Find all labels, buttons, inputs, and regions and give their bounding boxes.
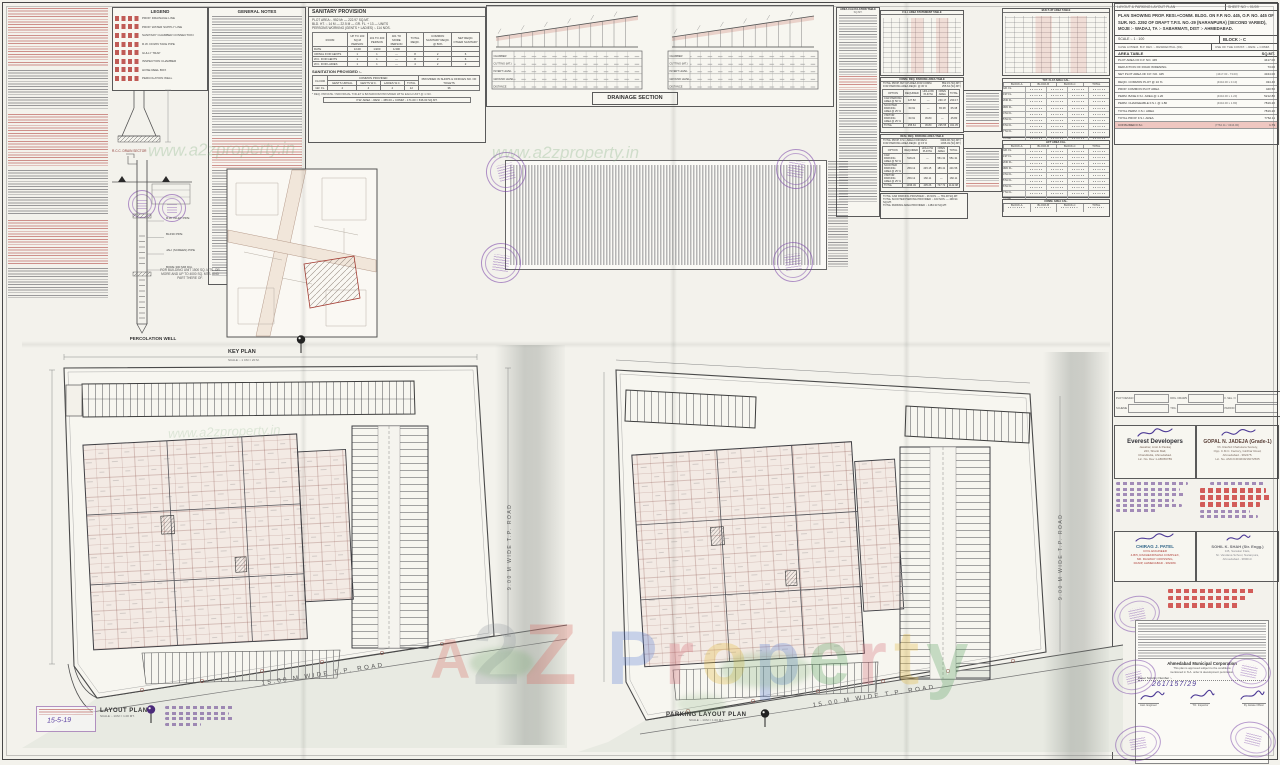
cell (1067, 167, 1088, 172)
cell: 295.55 (936, 124, 948, 128)
row: CAR PARKING AREA @ 50 %127.82—230.17230.… (883, 97, 960, 104)
area-table-row: CONSUMED F.S.I. (7762.11 / 4344.00) 1.79 (1115, 122, 1278, 129)
cell (1088, 130, 1109, 135)
col-header: BLOCK-A (1003, 83, 1030, 86)
area-row-calc: (7762.11 / 4344.00) (1205, 123, 1249, 127)
area-row-value: 1.79 (1249, 123, 1278, 127)
sign-label: T.D. Inspector (1190, 703, 1210, 707)
floor-label: 2ND FL. (1003, 99, 1025, 104)
legend-item: PERCOLATION WELL (113, 74, 207, 83)
floor-label: 1ST FL. (1003, 93, 1025, 98)
cell: 4 (406, 62, 424, 67)
cell: SCOOTER PARKING AREA @ 25 % (883, 104, 904, 114)
cell (1046, 155, 1067, 160)
legend-item-label: PERCOLATION WELL (142, 76, 172, 80)
body: CAR PARKING AREA @ 50 %518.24—551.31551.… (883, 154, 960, 188)
area-row-value: 5212.80 (1249, 94, 1278, 98)
bullet-line: FOR PARKING AREA REQD. @ 30 %255.64 (SQ.… (881, 85, 963, 88)
legend-item: INSPECTION CHAMBER (113, 57, 207, 66)
fold-crease (670, 3, 677, 759)
drainage-diagram-1: CHAMBER CUTTING (MT.) INVERT LEVEL GROUN… (492, 12, 642, 89)
cell: FLOOR (313, 76, 328, 86)
cell (1088, 167, 1109, 172)
info-value-box (1134, 394, 1169, 403)
cell (1088, 173, 1109, 178)
row: VISITOR PARKING AREA @ 25 %63.9145.80—45… (883, 114, 960, 124)
row: SCOOTER PARKING AREA @ 25 %259.12245.151… (883, 164, 960, 174)
col-header: BLOCK-B (1030, 145, 1057, 148)
area-table-row: PERM. CHARGEABLE F.S.I. @ 1.80 (4344.00 … (1115, 100, 1278, 107)
sanitary-header-cell: TOTAL REQD. (406, 33, 424, 47)
cell (1088, 191, 1109, 196)
floor-label: 7TH FL. (1003, 130, 1025, 135)
info-label: F. SEL. N (1225, 397, 1236, 400)
legend-item-label: HOSE REEL BOX (142, 68, 166, 72)
info-value-box (1237, 394, 1278, 403)
col-header: TOTAL (1083, 83, 1110, 86)
floor-label: 5TH FL. (1003, 118, 1025, 123)
cell: OPTION (883, 147, 903, 154)
svg-text:CHAMBER: CHAMBER (494, 54, 507, 58)
cell (1088, 185, 1109, 190)
col-header: TOTAL (1083, 145, 1110, 148)
amc-signatures (1138, 689, 1266, 703)
cell: 160.11 (920, 174, 936, 184)
legend-symbol-icon (115, 42, 139, 47)
col-header: BLOCK-C (1056, 83, 1083, 86)
area-row-value: 4344.00 (1249, 72, 1278, 76)
legend-symbol-icon (115, 50, 139, 55)
legend-item-label: R.W. DOWN TAKE PIPE (142, 42, 175, 46)
cell (1088, 149, 1109, 154)
general-notes-title: GENERAL NOTES (209, 8, 305, 15)
provided-value-row: GR. FL.4441236 (313, 86, 480, 91)
address-line: Ahmedabad - 380013. (1197, 557, 1278, 561)
info-label: PLOT DESIGN (1116, 397, 1133, 400)
plan-type-label: LAYOUT & PARKING LAYOUT PLAN (1115, 4, 1226, 10)
area-row-label: REQD. COMMON PLOT @ 10 % (1115, 80, 1205, 84)
col-header: BLOCK-C (1056, 145, 1083, 148)
header-row: OPTIONREQUIREDHOLLOW PLINTHOPEN AREATOTA… (883, 147, 960, 154)
info-value-box (1188, 394, 1223, 403)
flat-area-rows: GR. FL. 1ST FL. 2ND FL. 3RD FL. 4TH FL. (1003, 87, 1109, 143)
notes-paragraph (8, 114, 108, 166)
area-row-calc: (4344.00 x 0.10) (1205, 80, 1249, 84)
area-row-value: 73.00 (1249, 65, 1278, 69)
cell: 65.38 (936, 104, 948, 114)
cell (1025, 106, 1046, 111)
cell (1088, 87, 1109, 92)
signature (1218, 426, 1258, 439)
total-parking-line: TOTAL PARKING AREA PROVIDED :- 1484.33 S… (883, 204, 965, 207)
lift-area-table: LIFT AREA CAL. BLOCK-ABLOCK-BBLOCK-CTOTA… (1002, 140, 1110, 198)
area-table-row: REQD. COMMON PLOT @ 10 % (4344.00 x 0.10… (1115, 78, 1278, 85)
cell: W.C. FOR LADIES (313, 62, 348, 67)
resi-parking-table: RESI. REQ. PARKING AREA TABLE TOTAL PROP… (880, 134, 964, 192)
area-table-title: AREA TABLE (1115, 51, 1238, 56)
cell (1046, 87, 1067, 92)
cell: — (387, 62, 407, 67)
floor-label: GR. FL. (1003, 87, 1025, 92)
sanitary-header-cell: 401 TO MORE PERSON (387, 33, 407, 47)
cell: GENTS W.C. (357, 81, 381, 86)
handwritten-gujarati-right (1200, 480, 1274, 520)
leader-label: R.W. INLET PIPE (166, 216, 212, 232)
fsi-table-grid (883, 18, 961, 73)
floor-label: 3RD FL. (1003, 106, 1025, 111)
cell (1025, 173, 1046, 178)
sanitary-header-cell: NET REQD. OTHER SANITARY (452, 33, 480, 47)
bullet-value: 255.64 (SQ.MT.) (942, 85, 961, 88)
cell (1046, 167, 1067, 172)
cell (1046, 149, 1067, 154)
area-row-value: 7819.20 (1249, 109, 1278, 113)
info-field: F. SEL. N (1225, 393, 1279, 403)
area-row-label: PERM. BASE F.S.I. AREA @ 1.20 (1115, 94, 1205, 98)
resi-parking-grid: OPTIONREQUIREDHOLLOW PLINTHOPEN AREATOTA… (882, 146, 960, 188)
developer-block: Everest Developers Jawahar, Amit & Panka… (1114, 425, 1196, 479)
cell (1025, 149, 1046, 154)
notes-text (212, 16, 302, 136)
drainage-section-drawing: CHAMBER CUTTING (MT.) INVERT LEVEL GROUN… (488, 7, 830, 95)
block-label: BLOCK :- C (1220, 36, 1278, 43)
resi-parking-bullets: TOTAL PROP. F.S.I. AREA FOR RESI.6909.96… (881, 139, 963, 145)
legend-symbol-icon (115, 24, 139, 29)
engineer2-lines: 3-B, Sanskar Flats,Nr. Vandana School, N… (1197, 549, 1278, 561)
sheet-no: SHEET NO :- 01/09 (1226, 4, 1278, 10)
cell: 4 (357, 86, 381, 91)
cell: GENTS URINAL (328, 81, 357, 86)
leader-label: JALI (SCREEN) PIPE (166, 248, 212, 264)
cell (1088, 161, 1109, 166)
floor-label: 7TH FL. (1003, 191, 1025, 196)
cell: 45.80 (920, 114, 936, 124)
drawing-description: PLAN SHOWING PROP. RESI.+COMM. BLDG. ON … (1115, 11, 1278, 36)
amc-sign-labels: Asst. EngineerT.D. InspectorDy. Estate O… (1138, 703, 1266, 707)
cell: 431.56 (947, 164, 959, 174)
cell (1046, 99, 1067, 104)
area-row-label: PERM. CHARGEABLE F.S.I. @ 1.80 (1115, 101, 1205, 105)
cell (1067, 149, 1088, 154)
comm-parking-bullets: TOTAL PROP. BLT.UP AREA FOR COMM.852.15 … (881, 82, 963, 88)
cell: TOTAL (948, 90, 959, 97)
area-calc-unit: SQ.MT. (837, 11, 879, 14)
cell (1067, 185, 1088, 190)
area-row-label: PROP. COMMON PLOT AREA (1115, 87, 1205, 91)
info-value-box (1128, 404, 1169, 413)
cell: 12 (404, 86, 418, 91)
micro-rows (966, 123, 999, 128)
cell (1025, 179, 1046, 184)
cell (1088, 106, 1109, 111)
address-line: Lic. No. AMC/CR/4639/16072565 (1197, 457, 1278, 461)
architect-lines: Vh. Rashid Chabutara Society,Opp. C.M.C.… (1197, 445, 1278, 461)
svg-text:DISTANCE: DISTANCE (494, 84, 507, 88)
legend-item: SANITARY CHAMBER CONNECTION (113, 31, 207, 40)
comm-parking-grid: OPTIONREQUIREDHOLLOW PLINTHOPEN AREATOTA… (882, 89, 960, 128)
info-field: PERIOD (1225, 403, 1279, 413)
sanitary-header-cell: 101 TO 400 PERSON (367, 33, 387, 47)
percolation-note: FOR BUILDING UNIT 1500 SQ. MTS. ORMORE A… (156, 268, 224, 280)
notes-paragraph (8, 170, 108, 216)
row: SCOOTER PARKING AREA @ 25 %63.91—65.3865… (883, 104, 960, 114)
cell: — (935, 174, 947, 184)
col-header: BLOCK-B (1030, 83, 1057, 86)
developer-lines: Jawahar, Amit & Pankaj223, Shanti Mall,C… (1115, 445, 1195, 461)
legend-item: R.W. DOWN TAKE PIPE (113, 40, 207, 49)
engineer1-lines: CIVIL ENGINEER4-B/5, RADHEKRISHNA COMPLE… (1115, 549, 1195, 565)
sign-label: Asst. Engineer (1138, 703, 1159, 707)
parking-plan-caption: PARKING LAYOUT PLAN SCALE :- 1CM = 1.00 … (666, 712, 747, 722)
address-line: Lic. No. Dev 1-AB456789 (1115, 457, 1195, 461)
svg-text:INVERT LEVEL: INVERT LEVEL (494, 69, 513, 73)
legend-item-label: PROP. DRAINAGE LINE (142, 16, 175, 20)
cell (1067, 124, 1088, 129)
area-row-label: DEDUCTION OF ROAD WIDENING (1115, 65, 1205, 69)
area-table-row: DEDUCTION OF ROAD WIDENING 73.00 (1115, 64, 1278, 71)
fold-crease (300, 3, 307, 759)
fsi-statement-table: F.S.I. AREA STATEMENT TABLE (880, 10, 964, 76)
col-header: BLOCK-A (1003, 145, 1030, 148)
comm-area-table: COMM. AREA CAL. BLOCK-ABLOCK-BBLOCK-CTOT… (1002, 199, 1110, 217)
sanitary-table-header-row: ROOMUP TO 100 SQ.M PERSON101 TO 400 PERS… (313, 33, 480, 47)
cell (1067, 155, 1088, 160)
micro-rows (839, 15, 877, 75)
notes-paragraph (8, 220, 108, 264)
flat-area-table: TOT. FLAT AREA CAL. BLOCK-ABLOCK-BBLOCK-… (1002, 78, 1110, 138)
cell (1088, 124, 1109, 129)
engineer2-block: SOHIL K. SHAH (Str. Engg.) 3-B, Sanskar … (1196, 531, 1279, 582)
area-table-rows: PLOT AREA OF F.P. NO. 445 4417.00 DEDUCT… (1115, 57, 1278, 130)
signature (1188, 689, 1216, 703)
case-right: USE OF THE CONST. :- RESI. + COMM. (1212, 44, 1278, 50)
area-row-value: 7819.20 (1249, 101, 1278, 105)
comm-area-cols: BLOCK-ABLOCK-BBLOCK-CTOTAL (1003, 204, 1109, 212)
cell (1046, 173, 1067, 178)
cell: — (920, 97, 936, 104)
cell (1025, 112, 1046, 117)
cell (1046, 124, 1067, 129)
info-value-box (1235, 404, 1277, 413)
cell: 186.41 (935, 164, 947, 174)
info-label: DRG. DRAWN (1170, 397, 1187, 400)
sanitation-provided-table: FLOOR COMMON PROVIDED PROVIDED IN SHOPS … (312, 75, 480, 91)
engineer1-block: CHIRAG J. PATEL CIVIL ENGINEER4-B/5, RAD… (1114, 531, 1196, 582)
sanitary-table: ROOMUP TO 100 SQ.M PERSON101 TO 400 PERS… (312, 32, 480, 67)
cell: 230.17 (936, 97, 948, 104)
legend-item-label: GULLY TRAP (142, 51, 160, 55)
sanitary-header-cell: COMMON SANITARY REQD. @ 50% (424, 33, 452, 47)
cell (1046, 112, 1067, 117)
mini-table-2 (963, 148, 1002, 192)
cell: CAR PARKING AREA @ 50 % (883, 154, 903, 164)
cell: OPEN AREA (935, 147, 947, 154)
cell: 737.72 (935, 184, 947, 188)
notes-text-red (212, 138, 302, 168)
cell: VISITOR PARKING AREA @ 25 % (883, 174, 903, 184)
cell (1046, 185, 1067, 190)
cell (1088, 112, 1109, 117)
bua-grid (1005, 16, 1107, 73)
cell: 551.31 (935, 154, 947, 164)
signature (1238, 689, 1266, 703)
col-header: BLOCK-A (1003, 204, 1030, 212)
micro-rows (839, 76, 877, 90)
header-row: OPTIONREQUIREDHOLLOW PLINTHOPEN AREATOTA… (883, 90, 960, 97)
date-stamp-box: 15-5-19 (36, 706, 96, 732)
floor-label: GR. FL. (1003, 149, 1025, 154)
legend-item: GULLY TRAP (113, 48, 207, 57)
legend-symbol-icon (115, 16, 139, 21)
row: CAR PARKING AREA @ 50 %518.24—551.31551.… (883, 154, 960, 164)
cell (1067, 191, 1088, 196)
address-line: RANIP, AHMEDABAD - 382480. (1115, 561, 1195, 565)
micro-rows (966, 183, 999, 188)
cell (1067, 179, 1088, 184)
cell: TOTAL (883, 124, 904, 128)
architect-block: GOPAL N. JADEJA (Grade-1) Vh. Rashid Cha… (1196, 425, 1279, 479)
cell: 4 (328, 86, 357, 91)
legend-symbol-icon (115, 33, 139, 38)
floor-label: 1ST FL. (1003, 155, 1025, 160)
cell: HOLLOW PLINTH (920, 90, 936, 97)
info-field: PLOT DESIGN (1116, 393, 1170, 403)
cell: PROVIDED IN SHOPS & OFFICES NO. OF TOILE… (419, 76, 480, 86)
floor-label: 2ND FL. (1003, 161, 1025, 166)
legend-symbol-icon (115, 67, 139, 72)
cell: 2 (424, 62, 452, 67)
area-row-label: NET PLOT AREA OF F.P. NO. 445 (1115, 72, 1205, 76)
floor-label: 4TH FL. (1003, 173, 1025, 178)
layout-plan-scale: SCALE :- 1CM = 1.00 MT. (100, 714, 148, 718)
area-row-calc: (4344.00 x 1.80) (1205, 101, 1249, 105)
cell (1025, 185, 1046, 190)
row: TOTAL255.6445.80295.55341.35 (883, 124, 960, 128)
svg-text:R.C.C. DRAIN SECTOR: R.C.C. DRAIN SECTOR (112, 149, 147, 153)
comm-parking-table: COMM. REQ. PARKING AREA TABLE TOTAL PROP… (880, 77, 964, 133)
layout-plan-caption: LAYOUT PLAN SCALE :- 1CM = 1.00 MT. (100, 708, 148, 718)
cell (1025, 155, 1046, 160)
parking-plan-drawing: 15.00 M WIDE T.P. ROAD 9.00 M WIDE T.P. … (578, 352, 1123, 752)
info-label: SCHEME (1116, 407, 1127, 410)
area-table-row: TOTAL PERM. F.S.I. AREA 7819.20 (1115, 108, 1278, 115)
legend-item: PROP. WATER SUPPLY LINE (113, 23, 207, 32)
cell: — (920, 154, 936, 164)
sanitary-panel: SANITARY PROVISION PLOT AREA :- 952 M² —… (308, 7, 486, 143)
drainage-diagram-2: CHAMBER CUTTING (MT.) INVERT LEVEL GROUN… (668, 12, 818, 89)
cell: 45.80 (948, 114, 959, 124)
cell: 36 (419, 86, 480, 91)
cell (1088, 155, 1109, 160)
fsi-table-title: F.S.I. AREA STATEMENT TABLE (881, 11, 963, 15)
cell (1046, 118, 1067, 123)
floor-label: 4TH FL. (1003, 112, 1025, 117)
scale-label: SCALE :- 1 : 100 (1115, 36, 1220, 43)
cell: GR. FL. (313, 86, 328, 91)
legend-item-label: SANITARY CHAMBER CONNECTION (142, 33, 194, 37)
info-field: SCHEME (1116, 403, 1170, 413)
area-row-label: PLOT AREA OF F.P. NO. 445 (1115, 58, 1205, 62)
row: TOTAL1036.49405.26737.721142.98 (883, 184, 960, 188)
cell (1067, 106, 1088, 111)
sanitary-info: PLOT AREA :- 952 M² — 222.97 SQ.MT.BLD. … (309, 17, 485, 31)
svg-text:CUTTING (MT.): CUTTING (MT.) (494, 62, 512, 66)
cell (1046, 130, 1067, 135)
cell: OPEN AREA (936, 90, 948, 97)
cell (1067, 87, 1088, 92)
drawing-info-table: PLOT DESIGN DRG. DRAWN F. SEL. N SCHEME … (1114, 391, 1280, 417)
total-parking-table: TOTAL CAR PARKING PROVIDED :- 26 NOS. — … (880, 193, 968, 219)
cell (1025, 93, 1046, 98)
layout-plan-drawing: 15.00 M WIDE T.P. ROAD 9.00 M WIDE T.P. … (22, 348, 572, 748)
area-row-label: CONSUMED F.S.I. (1115, 123, 1205, 127)
info-label: TRG. (1170, 407, 1176, 410)
floor-label: 6TH FL. (1003, 124, 1025, 129)
cell: 2 (452, 62, 480, 67)
area-row-label: TOTAL PERM. F.S.I. AREA (1115, 109, 1205, 113)
cell: LADIES W.C. (380, 81, 404, 86)
notes-paragraph (8, 70, 108, 110)
row: VISITOR PARKING AREA @ 25 %259.12160.11—… (883, 174, 960, 184)
cell: CAR PARKING AREA @ 50 % (883, 97, 904, 104)
site-notes-column (8, 8, 108, 300)
note-line: PART THERE OF. (156, 276, 224, 280)
cell (1067, 118, 1088, 123)
area-table-row: NET PLOT AREA OF F.P. NO. 445 (4417.00 -… (1115, 71, 1278, 78)
bullet-line: FOR PARKING AREA REQD. @ 15 %1036.49 (SQ… (881, 142, 963, 145)
legend-item-label: PROP. WATER SUPPLY LINE (142, 25, 182, 29)
legend-symbol-icon (115, 76, 139, 81)
cell: 341.35 (948, 124, 959, 128)
cell (1025, 99, 1046, 104)
svg-text:GROUND LEVEL: GROUND LEVEL (494, 77, 515, 81)
north-arrow-icon (146, 704, 156, 724)
area-table-row: PROP. COMMON PLOT AREA 440.50 (1115, 86, 1278, 93)
sanitary-table-body: RATE 1/100 1/200 1/400 URINAL FOR GENTS … (313, 47, 480, 67)
handwritten-gujarati-left (1116, 480, 1192, 515)
notes-paragraph (8, 268, 108, 298)
sanitary-boxed-note: P.W. AREA :- RESI :- 465.00 + COMM :- 17… (323, 97, 471, 103)
signature (1133, 532, 1177, 544)
info-label: PERIOD (1225, 407, 1235, 410)
cell: 1 (348, 62, 368, 67)
area-table-row: TOTAL PROP. F.S.I. AREA 7762.11 (1115, 115, 1278, 122)
cell (1067, 173, 1088, 178)
cell: 245.15 (920, 164, 936, 174)
drainage-section-label: DRAINAGE SECTION (592, 92, 678, 105)
cell (1025, 124, 1046, 129)
sanitary-table-row: W.C. FOR LADIES 1 1 — 4 2 2 (313, 62, 480, 67)
fold-crease-horizontal (22, 341, 1110, 348)
cell: SCOOTER PARKING AREA @ 25 % (883, 164, 903, 174)
area-table-row: PLOT AREA OF F.P. NO. 445 4417.00 (1115, 57, 1278, 64)
cell (1088, 179, 1109, 184)
stamp-header (39, 709, 93, 715)
sign-label: Dy. Estate Officer (1242, 703, 1266, 707)
built-up-area-table: BUILT-UP AREA TABLE (1002, 8, 1110, 76)
cell: 45.80 (920, 124, 936, 128)
legend-symbol-icon (115, 59, 139, 64)
floor-label: 6TH FL. (1003, 185, 1025, 190)
cell (1025, 130, 1046, 135)
cell (1088, 99, 1109, 104)
cell (1088, 93, 1109, 98)
cell: OPTION (883, 90, 904, 97)
area-row-label: TOTAL PROP. F.S.I. AREA (1115, 116, 1205, 120)
handwritten-note (165, 704, 237, 728)
area-row-calc: (4344.00 x 1.20) (1205, 94, 1249, 98)
body: CAR PARKING AREA @ 50 %127.82—230.17230.… (883, 97, 960, 128)
